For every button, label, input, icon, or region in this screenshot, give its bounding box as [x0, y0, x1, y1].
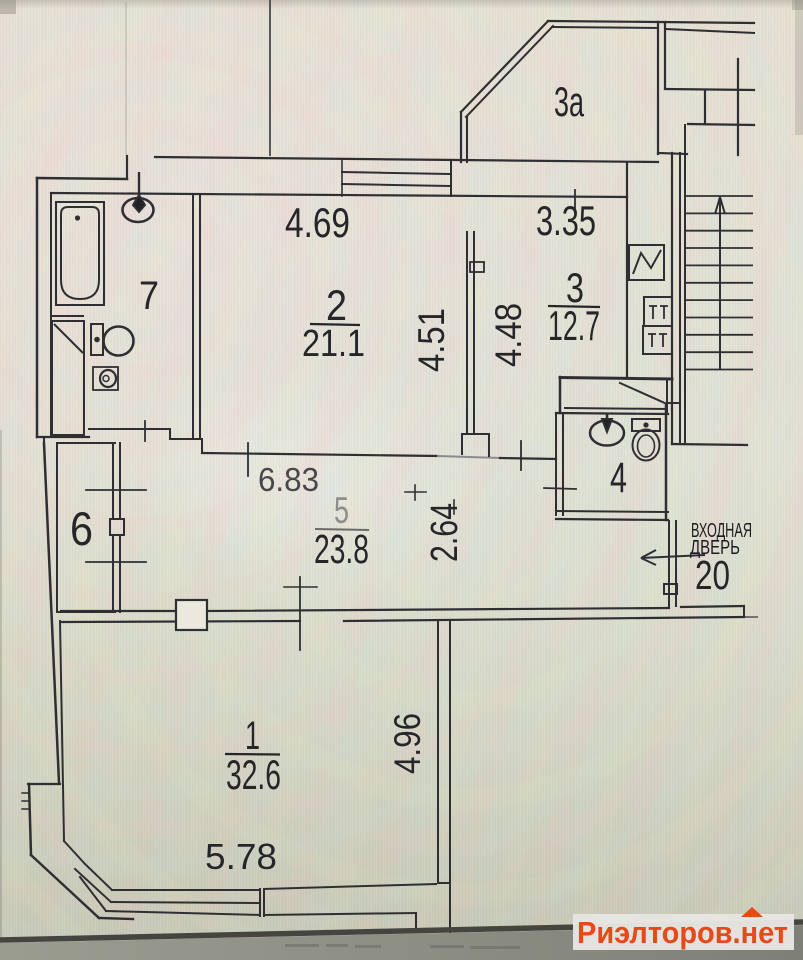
svg-text:ДВЕРЬ: ДВЕРЬ: [690, 537, 740, 559]
svg-text:5.78: 5.78: [205, 836, 277, 877]
svg-text:21.1: 21.1: [302, 323, 365, 365]
svg-text:3.35: 3.35: [536, 197, 596, 244]
svg-text:4: 4: [610, 454, 627, 502]
svg-text:23.8: 23.8: [314, 526, 369, 572]
svg-text:32.6: 32.6: [226, 751, 281, 798]
svg-text:6.83: 6.83: [258, 461, 319, 498]
svg-text:4.96: 4.96: [387, 713, 428, 774]
svg-text:12.7: 12.7: [548, 302, 600, 349]
svg-text:Риэлторов.нет: Риэлторов.нет: [577, 915, 788, 950]
svg-text:4.69: 4.69: [285, 199, 350, 246]
svg-text:4.51: 4.51: [411, 308, 452, 372]
svg-text:3а: 3а: [554, 78, 584, 125]
svg-text:5: 5: [334, 490, 349, 531]
svg-text:2.64: 2.64: [424, 503, 466, 562]
svg-text:6: 6: [70, 502, 93, 555]
svg-text:7: 7: [139, 274, 159, 318]
svg-text:4.48: 4.48: [488, 303, 529, 367]
